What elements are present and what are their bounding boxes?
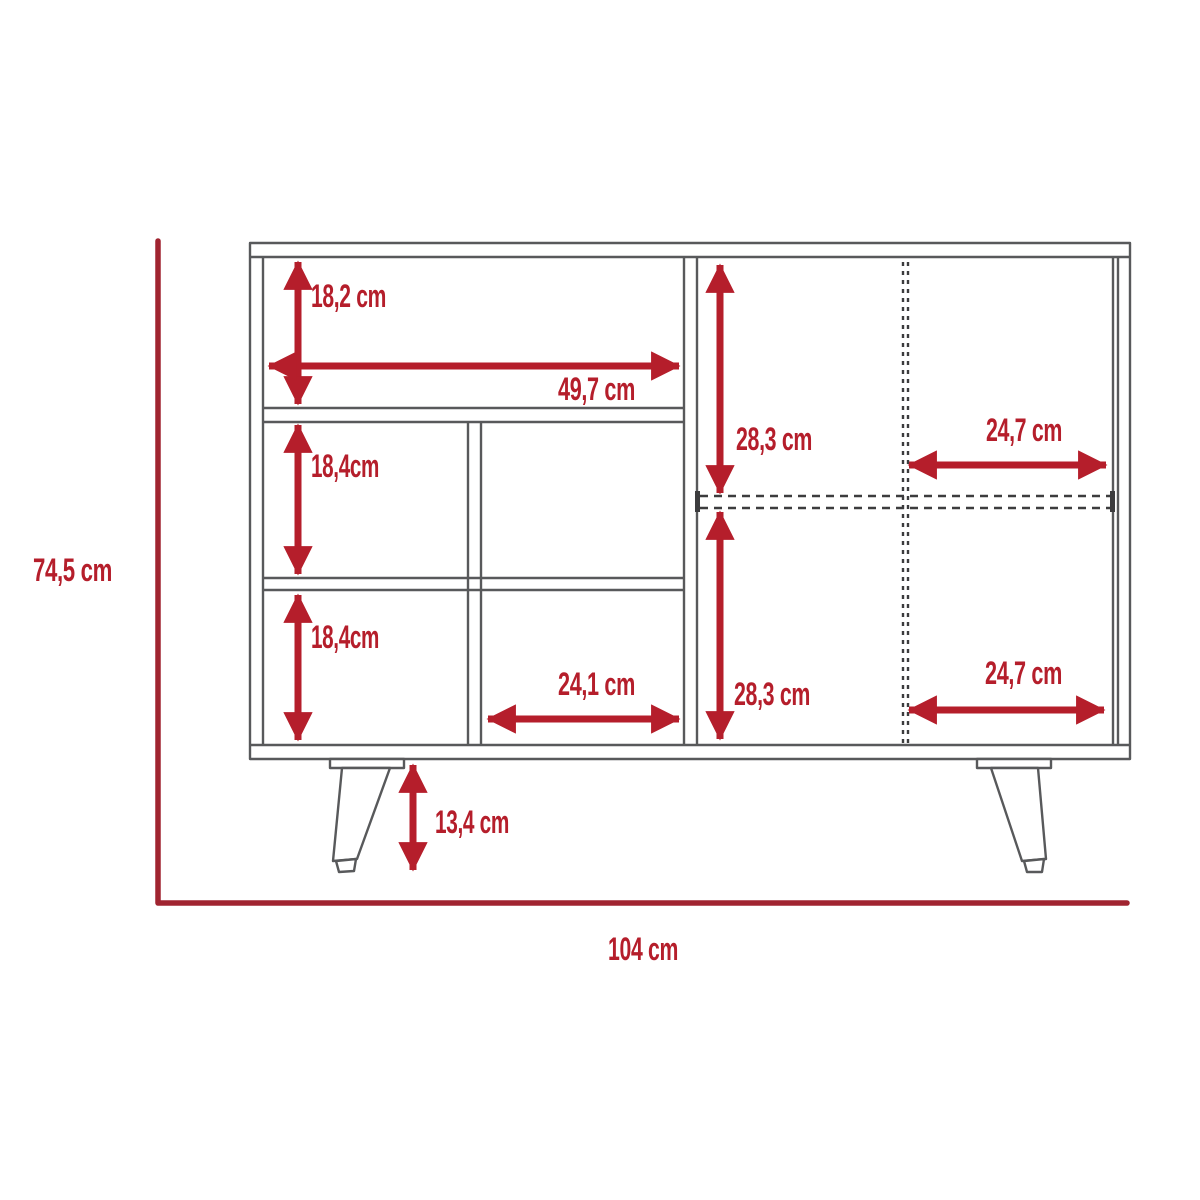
label-door-bottom-height: 28,3 cm [734, 676, 810, 712]
label-door-top-height: 28,3 cm [736, 421, 812, 457]
left-hinge-mark [695, 491, 700, 512]
label-leg-height: 13,4 cm [435, 804, 509, 840]
label-door-top-width: 24,7 cm [986, 412, 1062, 448]
label-shelf-bottom-width: 24,1 cm [558, 666, 635, 702]
left-leg-foot [336, 859, 356, 872]
label-overall-height: 74,5 cm [33, 552, 112, 588]
right-leg-plate [977, 759, 1051, 768]
label-door-bottom-width: 24,7 cm [985, 655, 1062, 691]
label-shelf-top-width: 49,7 cm [558, 371, 635, 407]
label-shelf-mid-height: 18,4cm [311, 448, 379, 484]
right-leg [977, 759, 1051, 872]
sideboard-dimension-diagram: 18,2 cm 49,7 cm 18,4cm 18,4cm 24,1 cm 28… [0, 0, 1200, 1200]
label-shelf-bottom-height: 18,4cm [311, 619, 379, 655]
left-leg-plate [330, 759, 404, 768]
right-leg-body [991, 768, 1046, 861]
right-leg-foot [1024, 859, 1044, 872]
label-overall-width: 104 cm [608, 931, 678, 967]
furniture-dimension-diagram-page: 18,2 cm 49,7 cm 18,4cm 18,4cm 24,1 cm 28… [0, 0, 1200, 1200]
label-shelf-top-height: 18,2 cm [311, 278, 386, 314]
left-leg-body [333, 768, 390, 861]
right-hinge-mark [1110, 491, 1115, 512]
left-leg [330, 759, 404, 872]
